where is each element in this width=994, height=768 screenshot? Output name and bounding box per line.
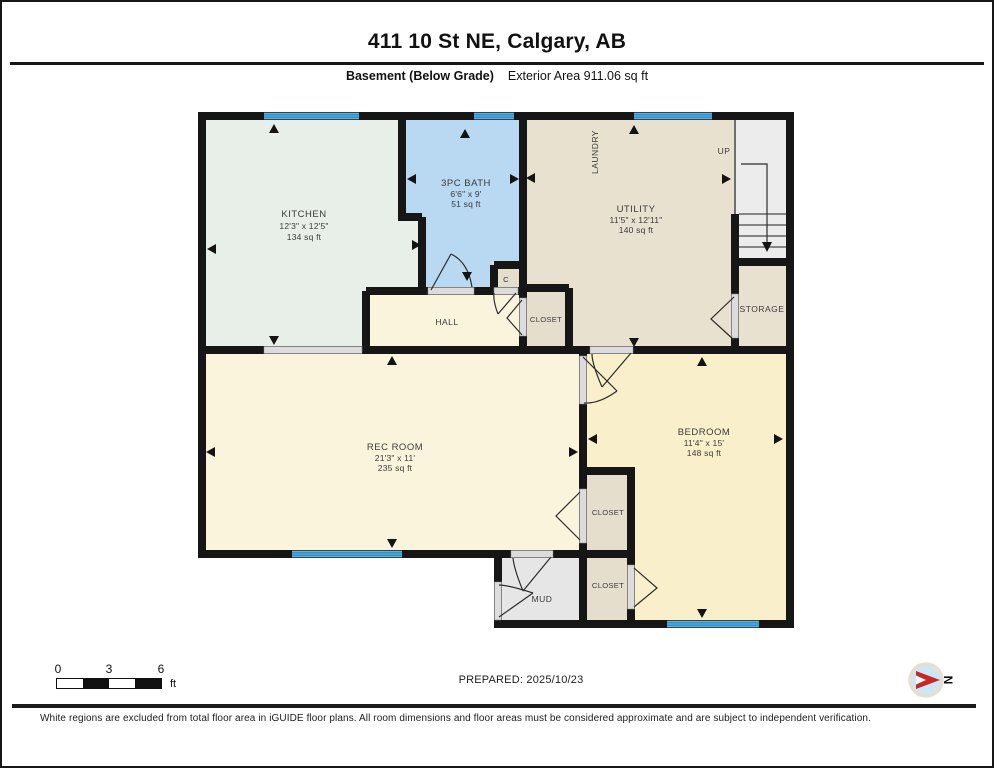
compass-north-label: N [941, 676, 955, 685]
room-utility-label: UTILITY [617, 204, 656, 215]
closet-c-label: C [503, 275, 509, 284]
footer-divider [12, 704, 976, 708]
stairs-fill [734, 116, 790, 262]
stairs-up-label: UP [718, 146, 731, 156]
floorplan-page: 411 10 St NE, Calgary, AB Basement (Belo… [0, 0, 994, 768]
room-bath-label: 3PC BATH [441, 178, 491, 189]
floorplan-drawing: KITCHEN 12'3" x 12'5" 134 sq ft 3PC BATH… [194, 104, 798, 652]
room-utility-area: 140 sq ft [619, 225, 654, 235]
room-bedroom-label: BEDROOM [678, 427, 731, 438]
exterior-area-label: Exterior Area 911.06 sq ft [508, 69, 648, 83]
room-kitchen-area: 134 sq ft [287, 232, 322, 242]
prepared-date: PREPARED: 2025/10/23 [2, 674, 992, 686]
page-title: 411 10 St NE, Calgary, AB [2, 30, 992, 54]
room-mud-fill [494, 554, 587, 624]
room-storage-label: STORAGE [740, 304, 785, 314]
room-mud-label: MUD [532, 594, 553, 604]
floor-label: Basement (Below Grade) [346, 69, 494, 83]
room-laundry-label: LAUNDRY [590, 130, 600, 174]
room-rec-label: REC ROOM [367, 442, 423, 453]
closet-bedroom-label: CLOSET [592, 581, 624, 590]
room-bath-dims: 6'6" x 9' [450, 189, 481, 199]
compass-icon: N [896, 652, 960, 708]
room-bedroom-area: 148 sq ft [687, 448, 722, 458]
room-hall-label: HALL [435, 317, 458, 327]
room-bedroom-dims: 11'4" x 15' [684, 438, 725, 448]
room-kitchen-label: KITCHEN [281, 209, 326, 220]
disclaimer-text: White regions are excluded from total fl… [40, 713, 972, 724]
closet-hall-label: CLOSET [530, 315, 562, 324]
room-rec-dims: 21'3" x 11' [375, 453, 416, 463]
room-utility-dims: 11'5" x 12'11" [610, 215, 663, 225]
room-kitchen-dims: 12'3" x 12'5" [279, 221, 328, 231]
room-rec-area: 235 sq ft [378, 463, 413, 473]
closet-rec-label: CLOSET [592, 508, 624, 517]
header-divider [10, 62, 984, 65]
room-bath-area: 51 sq ft [451, 199, 481, 209]
subtitle: Basement (Below Grade) Exterior Area 911… [2, 69, 992, 83]
